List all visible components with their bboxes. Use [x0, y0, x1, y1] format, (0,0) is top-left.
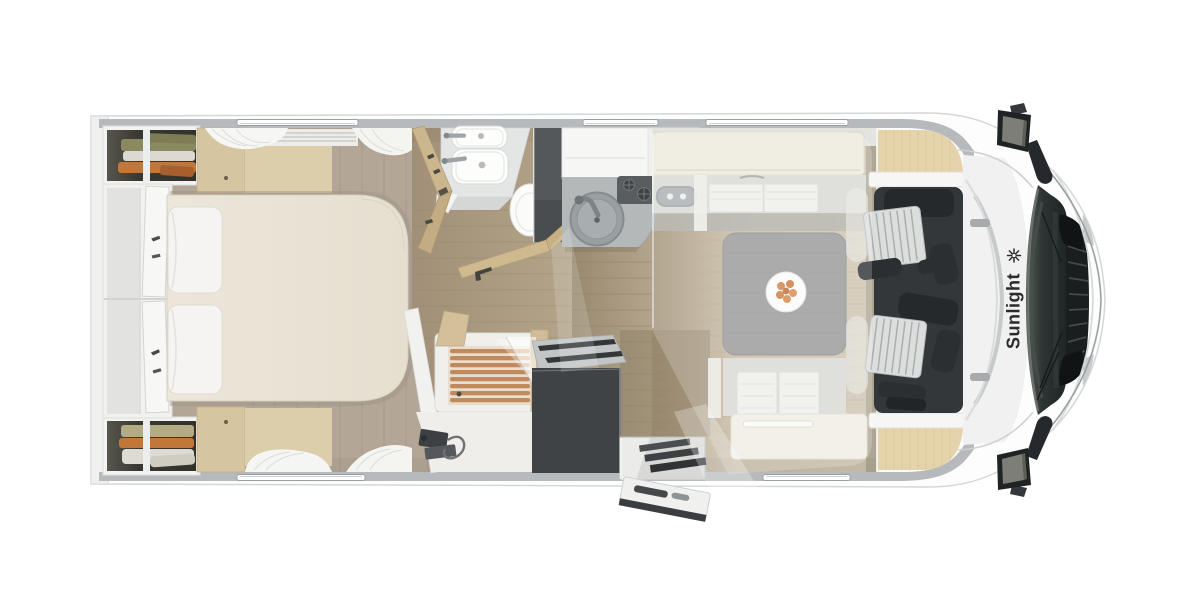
svg-text:Sunlight: Sunlight: [1004, 273, 1024, 349]
